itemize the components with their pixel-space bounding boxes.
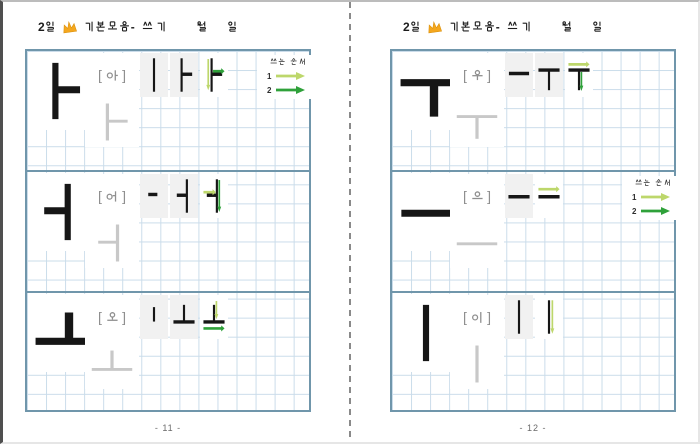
step-glyph-sv [142,298,166,336]
page-number: - 12 - [390,423,676,433]
stroke-step-cell [200,295,228,339]
step-glyph-o [172,298,196,336]
month-label [196,20,208,34]
big-vowel-i [398,301,454,365]
stroke-step-cell [565,53,593,97]
vowel-section-eu: []12 [392,172,674,293]
label-column: [] [85,295,139,389]
trace-character-i [454,343,500,390]
legend-item-1: 1 [267,71,319,81]
big-vowel-eu [398,180,454,244]
vowel-section-o: [] [27,293,309,412]
worksheet-grid-page-12: [][]12[] [390,49,676,412]
stroke-step-cell [140,174,168,218]
big-vowel-eo [33,180,89,244]
worksheet-grid-page-11: []12[][] [25,49,311,412]
page-divider [349,2,351,444]
stroke-step-cell [535,53,563,97]
stroke-step-cell [140,295,168,339]
label-column: [] [85,53,139,147]
day-number-label: 2 [38,20,57,34]
step-glyph-a [172,56,196,94]
page-number: - 11 - [25,423,311,433]
trace-character-eu [454,222,500,269]
step-glyph-a [202,56,226,94]
vowel-section-eo: [] [27,172,309,293]
step-glyph-hmid [507,56,531,94]
syllable-eo [105,188,119,204]
step-glyph-i [507,298,531,336]
syllable-o [105,309,119,325]
step-glyph-u [537,56,561,94]
legend-title [257,58,319,67]
pronunciation-label: [] [450,55,504,95]
step-glyph-u [567,56,591,94]
vowel-section-u: [] [392,51,674,172]
syllable-u [470,67,484,83]
legend-number: 2 [632,207,636,216]
stroke-step-row [505,174,563,218]
pronunciation-label: [] [85,297,139,337]
legend-title [622,179,684,188]
legend-number: 2 [267,86,271,95]
bracket-close: ] [122,309,126,325]
bracket-close: ] [487,188,491,204]
stroke-step-cell [200,53,228,97]
step-glyph-v [142,56,166,94]
legend-item-2: 2 [632,206,684,216]
month-label [561,20,573,34]
syllable-i [470,309,484,325]
bracket-open: [ [98,67,102,83]
pronunciation-label: [] [450,297,504,337]
bracket-open: [ [463,188,467,204]
stroke-step-row [505,53,593,97]
date-day-label [591,20,603,34]
stroke-step-cell [535,295,563,339]
crown-icon [426,20,443,34]
trace-character-u [454,101,500,148]
crown-icon [61,20,78,34]
label-column: [] [450,174,504,268]
bracket-open: [ [98,309,102,325]
stroke-step-cell [200,174,228,218]
worksheet-title: - [447,20,531,34]
stroke-step-cell [170,53,198,97]
bracket-close: ] [487,309,491,325]
stroke-order-legend: 12 [257,55,319,99]
step-glyph-eu [507,177,531,215]
step-glyph-eu [537,177,561,215]
bracket-open: [ [463,67,467,83]
trace-character-o [89,343,135,390]
bracket-close: ] [487,67,491,83]
stroke-step-cell [535,174,563,218]
vowel-section-a: []12 [27,51,309,172]
pronunciation-label: [] [85,55,139,95]
bracket-open: [ [463,309,467,325]
legend-number: 1 [267,72,271,81]
big-vowel-a [33,59,89,123]
legend-item-1: 1 [632,192,684,202]
stroke-step-cell [505,174,533,218]
worksheet-title: - [82,20,166,34]
vowel-section-i: [] [392,293,674,412]
day-number-label: 2 [403,20,422,34]
syllable-a [105,67,119,83]
stroke-step-cell [140,53,168,97]
step-glyph-tick [142,177,166,215]
pronunciation-label: [] [450,176,504,216]
label-column: [] [450,295,504,389]
page-header-left: 2 - [38,18,239,36]
page-header-right: 2 - [403,18,604,36]
stroke-step-row [140,53,228,97]
syllable-eu [470,188,484,204]
pronunciation-label: [] [85,176,139,216]
label-column: [] [450,53,504,147]
stroke-step-row [140,295,228,339]
stroke-step-cell [505,295,533,339]
bracket-close: ] [122,188,126,204]
workbook-spread: 2 - 2 - []12[][] [][]12[] - 11 - - 12 - [0,0,700,444]
trace-character-eo [89,222,135,269]
step-glyph-i [537,298,561,336]
bracket-open: [ [98,188,102,204]
stroke-step-cell [505,53,533,97]
legend-item-2: 2 [267,85,319,95]
stroke-step-row [140,174,228,218]
stroke-step-cell [170,174,198,218]
step-glyph-eo [172,177,196,215]
stroke-step-row [505,295,563,339]
stroke-order-legend: 12 [622,176,684,220]
legend-number: 1 [632,193,636,202]
step-glyph-o [202,298,226,336]
bracket-close: ] [122,67,126,83]
label-column: [] [85,174,139,268]
stroke-step-cell [170,295,198,339]
step-glyph-eo [202,177,226,215]
date-day-label [226,20,238,34]
trace-character-a [89,101,135,148]
